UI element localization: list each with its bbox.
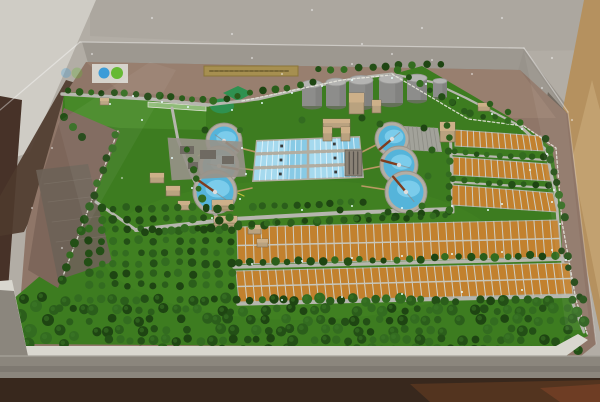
scene-canvas: [0, 0, 600, 402]
photo-wastewater-plant-scale-model: [0, 0, 600, 402]
